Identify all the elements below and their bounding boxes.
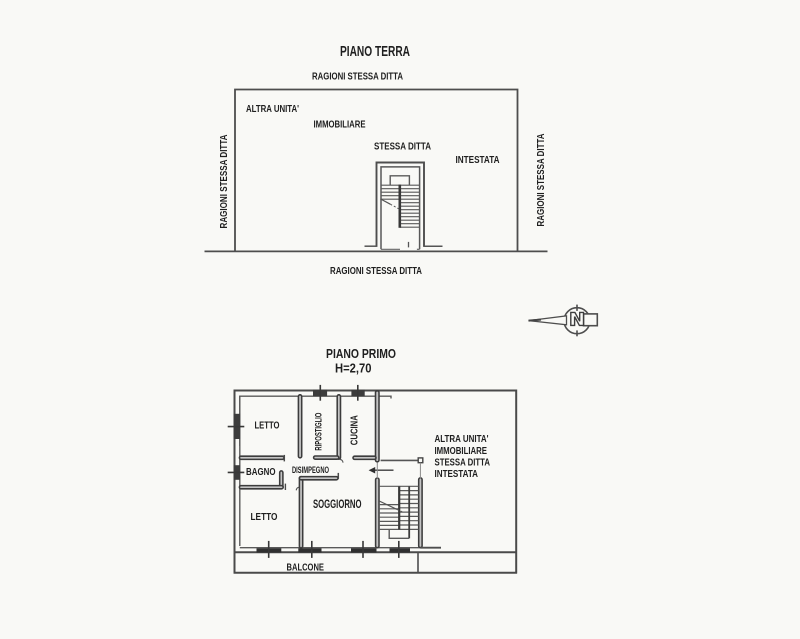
svg-text:H=2,70: H=2,70	[335, 361, 372, 376]
svg-text:PIANO TERRA: PIANO TERRA	[340, 43, 410, 60]
svg-text:IMMOBILIARE: IMMOBILIARE	[435, 446, 488, 457]
svg-text:LETTO: LETTO	[255, 419, 280, 431]
svg-text:RIPOSTIGLIO: RIPOSTIGLIO	[313, 413, 324, 451]
svg-text:CUCINA: CUCINA	[350, 415, 361, 445]
svg-text:IMMOBILIARE: IMMOBILIARE	[314, 119, 366, 131]
svg-text:RAGIONI STESSA DITTA: RAGIONI STESSA DITTA	[330, 265, 422, 277]
svg-text:BALCONE: BALCONE	[287, 561, 325, 573]
svg-text:RAGIONI STESSA DITTA: RAGIONI STESSA DITTA	[535, 133, 547, 226]
svg-text:INTESTATA: INTESTATA	[456, 154, 500, 166]
svg-text:LETTO: LETTO	[251, 511, 278, 523]
svg-text:STESSA DITTA: STESSA DITTA	[374, 141, 431, 153]
svg-text:DISIMPEGNO: DISIMPEGNO	[292, 465, 329, 476]
svg-text:STESSA DITTA: STESSA DITTA	[435, 458, 491, 469]
svg-text:BAGNO: BAGNO	[246, 466, 276, 478]
svg-text:PIANO PRIMO: PIANO PRIMO	[326, 346, 396, 361]
svg-text:ALTRA UNITA': ALTRA UNITA'	[435, 434, 489, 445]
svg-text:INTESTATA: INTESTATA	[435, 469, 479, 480]
svg-text:SOGGIORNO: SOGGIORNO	[313, 497, 362, 511]
svg-text:ALTRA UNITA': ALTRA UNITA'	[246, 103, 299, 115]
svg-text:RAGIONI STESSA DITTA: RAGIONI STESSA DITTA	[218, 134, 230, 228]
svg-text:RAGIONI STESSA DITTA: RAGIONI STESSA DITTA	[312, 71, 403, 83]
